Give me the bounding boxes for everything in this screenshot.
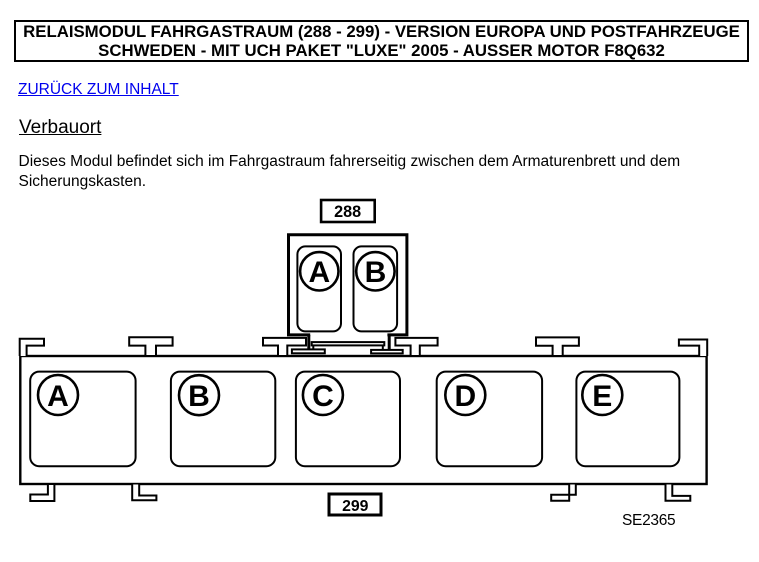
svg-text:A: A: [47, 380, 69, 413]
svg-text:SE2365: SE2365: [622, 512, 675, 529]
svg-text:288: 288: [334, 203, 361, 221]
svg-text:E: E: [592, 380, 612, 413]
svg-text:C: C: [312, 380, 334, 413]
svg-text:B: B: [188, 380, 210, 413]
svg-text:D: D: [454, 380, 476, 413]
svg-text:299: 299: [342, 498, 369, 515]
svg-text:A: A: [308, 256, 330, 289]
svg-text:B: B: [365, 256, 387, 289]
